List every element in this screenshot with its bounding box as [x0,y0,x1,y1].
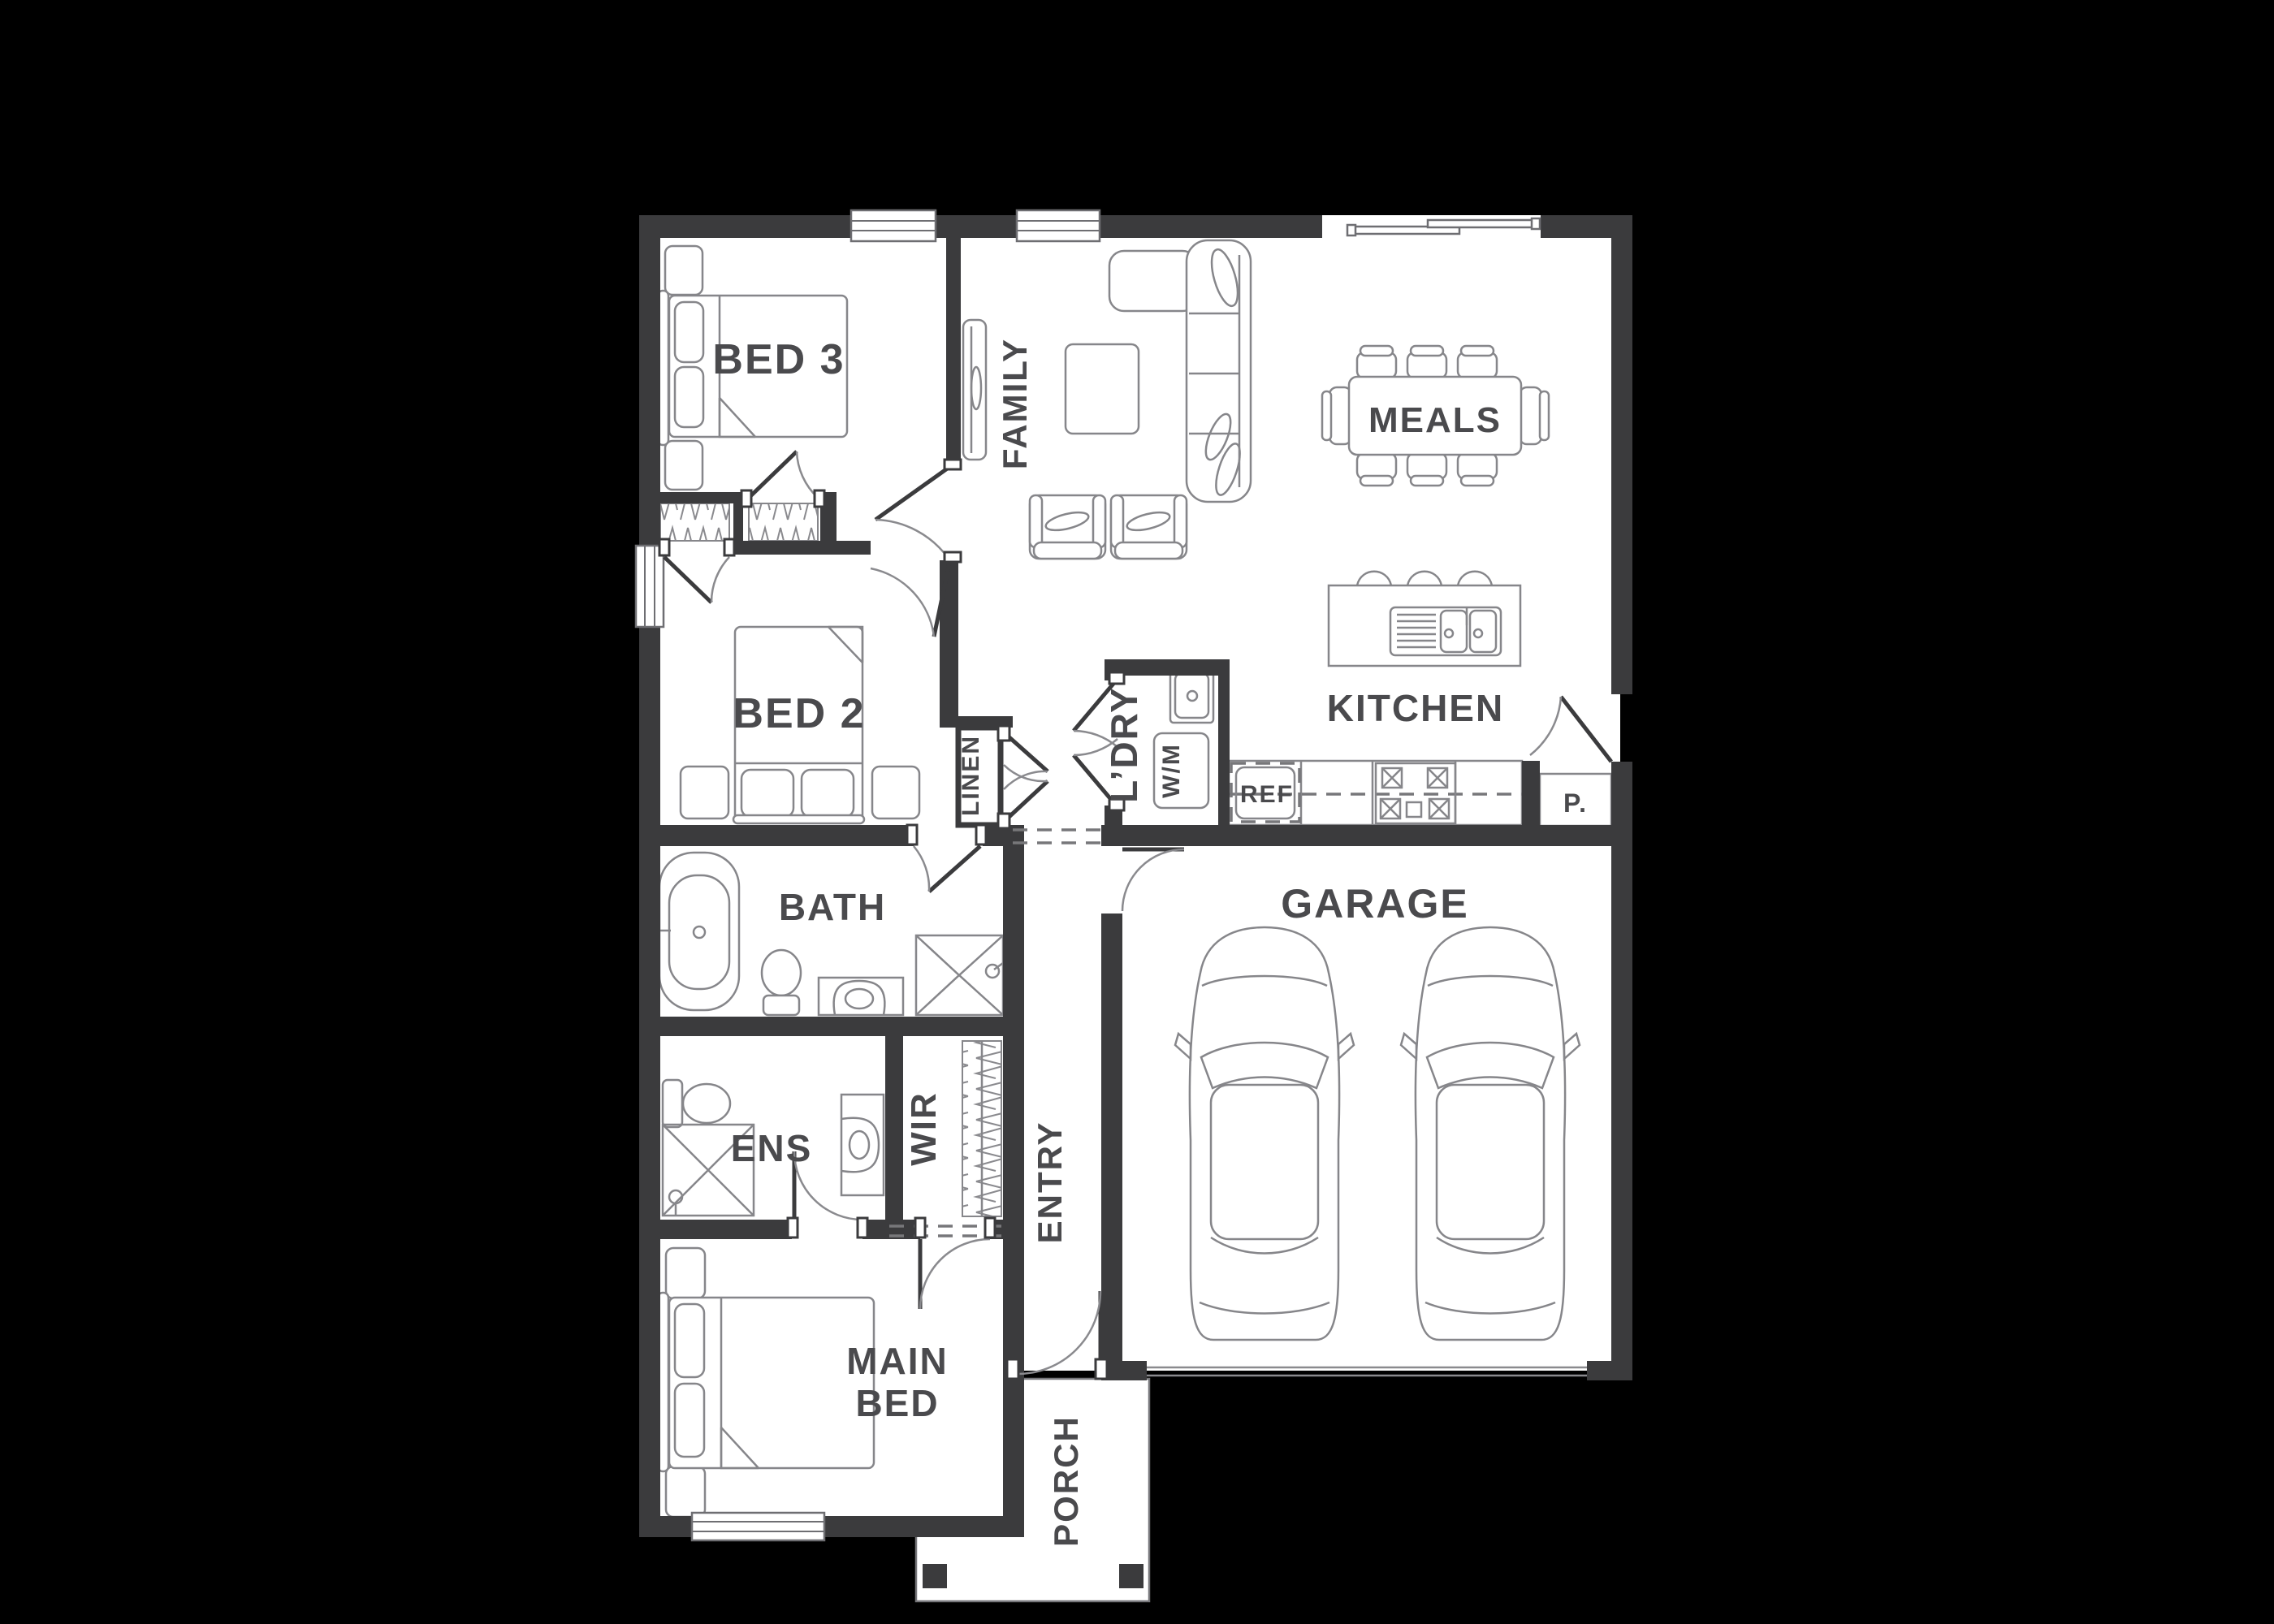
window [1017,210,1100,241]
chair-back [1322,391,1331,440]
armchair [1030,495,1105,559]
chair-back [1360,346,1393,356]
room-label-pantry: P. [1563,788,1588,818]
armchair-arm [1093,495,1105,547]
room-label-wir: WIR [904,1091,944,1166]
armchair-arm [1174,495,1187,547]
wir-fixtures [962,1041,1001,1216]
chair-back [1411,476,1443,486]
pillow [802,770,854,817]
porch-post [1119,1564,1143,1588]
vanity [841,1095,884,1195]
room-label-main-bed-line1: MAIN [846,1340,949,1382]
sofa-body [1187,240,1251,502]
pillow [675,1384,704,1457]
armchair-arm [1111,495,1123,547]
room-label-porch: PORCH [1047,1415,1085,1547]
pillow [675,367,703,427]
sofa-chaise [1109,251,1197,311]
nightstand [666,1466,705,1517]
nightstand [665,246,703,295]
pillow [675,1304,704,1377]
chair-back [1461,346,1494,356]
tv [963,320,986,460]
nightstand [666,1248,705,1298]
room-label-bed3: BED 3 [712,336,845,383]
floor-plan: BED 3 FAMILY MEALS BED 2 LINEN L’DRY W/M… [0,0,2274,1624]
chair-back [1360,476,1393,486]
room-label-entry: ENTRY [1031,1121,1069,1244]
armchair-back [1034,542,1101,559]
window [851,210,936,241]
toilet-bowl [683,1084,730,1123]
window [636,546,664,627]
room-label-garage: GARAGE [1281,881,1468,926]
window [692,1513,824,1540]
room-label-bath: BATH [779,886,886,928]
room-label-family: FAMILY [996,338,1034,469]
coffee-table [1066,344,1139,434]
room-label-ref: REF [1240,781,1294,808]
room-label-main-bed-line2: BED [855,1382,939,1424]
room-label-linen: LINEN [958,735,984,816]
toilet-tank [663,1080,682,1127]
armchair-arm [1030,495,1042,547]
pillow [741,770,793,817]
room-label-laundry: L’DRY [1103,686,1145,803]
armchair [1111,495,1187,559]
porch-post [923,1564,947,1588]
chair-back [1461,476,1494,486]
tv-unit [963,320,986,460]
chair-back [1411,346,1443,356]
nightstand [681,767,728,818]
room-label-kitchen: KITCHEN [1327,687,1504,729]
robe-bed3 [749,503,818,541]
armchair-back [1115,542,1182,559]
island-bench [1329,585,1520,666]
nightstand [665,441,703,490]
nightstand [872,767,919,818]
room-label-meals: MEALS [1368,400,1502,440]
bed-base [733,815,864,823]
sliding-door [1322,215,1541,238]
room-label-bed2: BED 2 [733,690,865,737]
dining-chair-end [1520,387,1541,444]
room-label-wm: W/M [1158,743,1185,798]
chair-back [1540,391,1549,440]
robe-bed2 [660,503,729,541]
pillow [675,302,703,362]
room-label-ens: ENS [731,1127,813,1169]
toilet-tank [763,996,799,1015]
toilet-bowl [762,950,801,996]
